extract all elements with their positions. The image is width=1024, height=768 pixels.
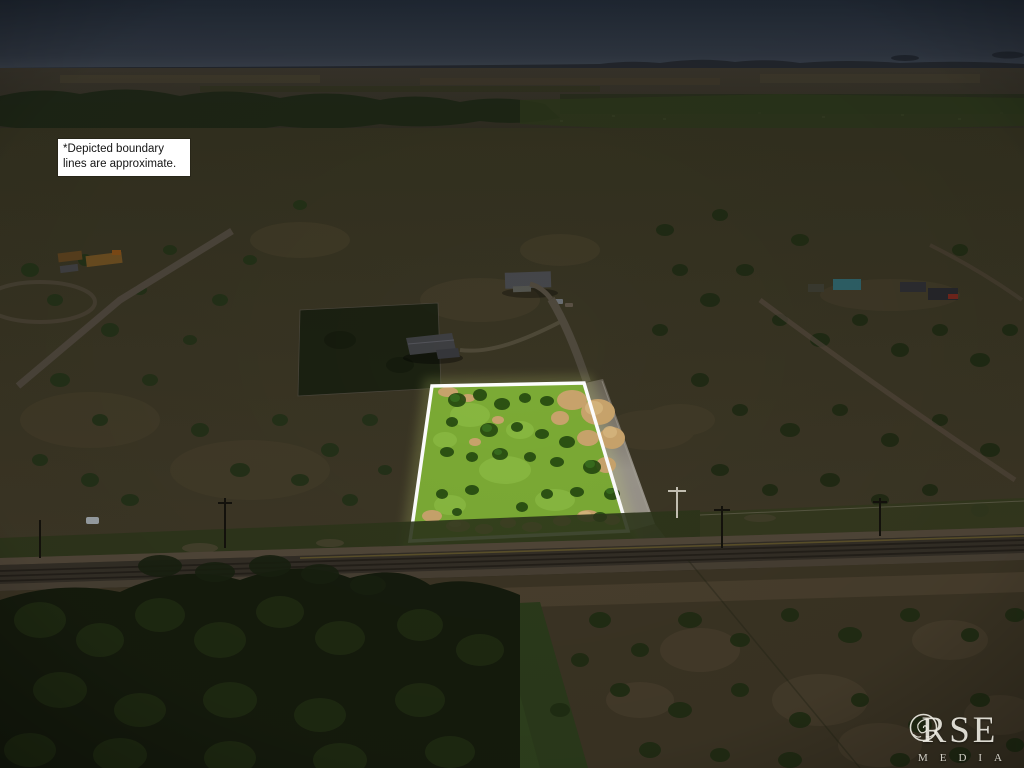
aerial-photo: *Depicted boundary lines are approximate… <box>0 0 1024 768</box>
vignette-overlay <box>0 0 1024 768</box>
rose-icon <box>908 712 939 743</box>
disclaimer-line1: *Depicted boundary <box>63 142 185 157</box>
logo-wordmark: R SE <box>906 712 1014 749</box>
disclaimer-line2: lines are approximate. <box>63 157 185 172</box>
logo-subtitle: MEDIA <box>906 752 1014 764</box>
logo-letters-se: SE <box>949 712 998 749</box>
aerial-scene <box>0 0 1024 768</box>
disclaimer-box: *Depicted boundary lines are approximate… <box>58 139 190 176</box>
rose-media-logo: R SE MEDIA <box>906 712 1014 764</box>
